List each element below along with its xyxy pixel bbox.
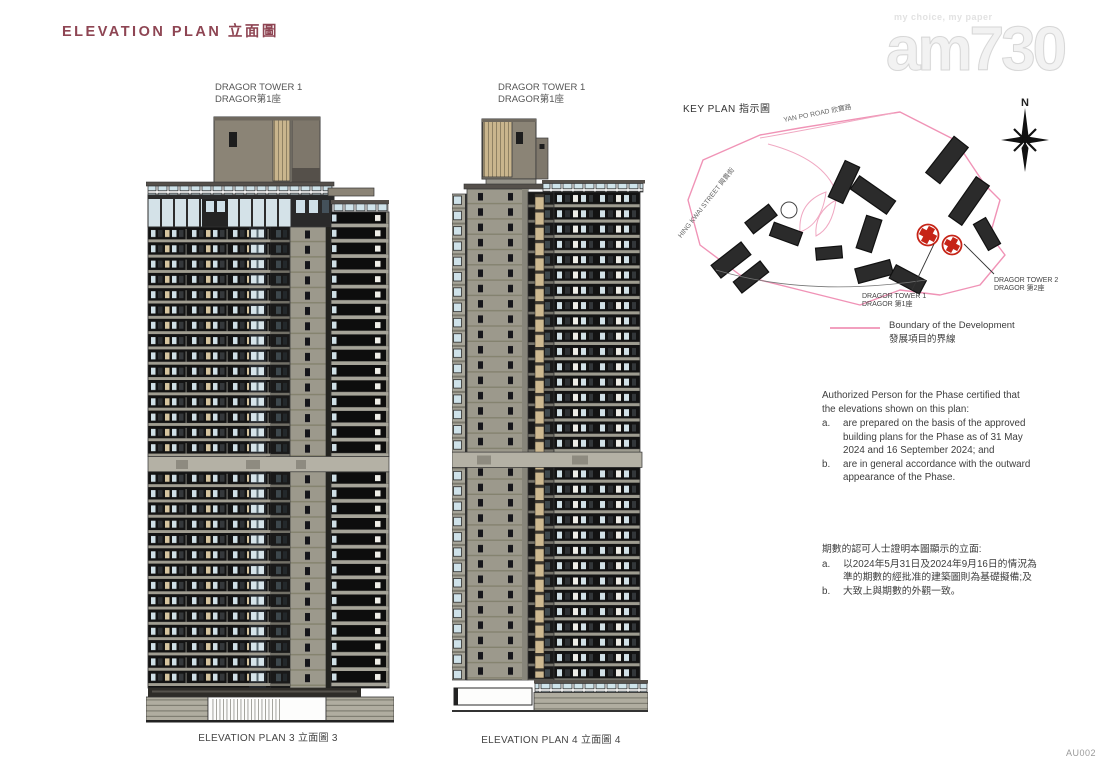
elevation-drawing-tower2 (452, 110, 648, 726)
map-label-tower2-zh: DRAGOR 第2座 (994, 283, 1045, 292)
elevation-drawing-tower1 (146, 112, 394, 724)
caption-elevation-plan-4: ELEVATION PLAN 4 立面圖 4 (446, 731, 656, 746)
road-curve (768, 144, 836, 192)
legend-text-en: Boundary of the Development (889, 319, 1015, 333)
tower1-facade-upper (148, 227, 290, 457)
note-zh-item-a: a. 以2024年5月31日及2024年9月16日的情況為準的期數的經批准的建築… (822, 558, 1046, 585)
map-label-tower1-en: DRAGOR TOWER 1 (862, 293, 926, 300)
tower1-title-en: DRAGOR TOWER 1 (215, 82, 302, 94)
building-footprints (711, 136, 1000, 294)
note-zh-item-a-text: 以2024年5月31日及2024年9月16日的情況為準的期數的經批准的建築圖則為… (843, 558, 1046, 585)
tower2-title-zh: DRAGOR第1座 (498, 94, 585, 106)
tower2-central-bay (528, 192, 554, 680)
tower1-podium (146, 688, 394, 723)
caption-elevation-plan-3: ELEVATION PLAN 3 立面圖 3 (144, 729, 392, 744)
tower2-podium (452, 680, 648, 712)
road-curve (816, 200, 836, 236)
page-title: ELEVATION PLAN 立面圖 (62, 20, 279, 41)
note-zh-item-b: b. 大致上與期數的外觀一致。 (822, 585, 1046, 599)
boundary-line-sample (830, 324, 880, 332)
tower1-title: DRAGOR TOWER 1 DRAGOR第1座 (215, 82, 302, 107)
north-label: N (1021, 97, 1029, 109)
tower1-facade-lower (148, 472, 290, 688)
note-en-item-b-text: are in general accordance with the outwa… (843, 458, 1036, 485)
tower1-title-zh: DRAGOR第1座 (215, 94, 302, 106)
tower1-refuge-floor (148, 457, 389, 472)
note-en-item-a-text: are prepared on the basis of the approve… (843, 417, 1036, 458)
note-en-item-b: b. are in general accordance with the ou… (822, 458, 1036, 485)
note-zh-item-b-text: 大致上與期數的外觀一致。 (843, 585, 1046, 599)
note-zh-item-a-key: a. (822, 558, 843, 585)
am730-logo: am730 (886, 14, 1106, 85)
map-circle-feature (781, 202, 797, 218)
note-en-item-b-key: b. (822, 458, 843, 485)
tower2-refuge-floor (452, 452, 642, 467)
tower1-right-wing (331, 200, 389, 688)
tower1-core-cap (328, 188, 374, 196)
note-en-item-a: a. are prepared on the basis of the appr… (822, 417, 1036, 458)
tower1-roof-structure (214, 117, 320, 185)
legend-text-zh: 發展項目的界線 (889, 333, 1015, 347)
tower2-facade-right (554, 192, 640, 680)
note-zh-intro: 期數的認可人士證明本圖顯示的立面: (822, 543, 1046, 557)
tower1-penthouse (146, 182, 334, 227)
key-plan-map: YAN PO ROAD 欣寶路 HING KWAI STREET 興貴街 DRA… (676, 92, 1106, 357)
map-label-tower2-en: DRAGOR TOWER 2 (994, 277, 1058, 284)
north-arrow: N (1001, 97, 1049, 172)
boundary-legend: Boundary of the Development 發展項目的界線 (830, 319, 1015, 348)
tower2-title-en: DRAGOR TOWER 1 (498, 82, 585, 94)
map-label-tower1-zh: DRAGOR 第1座 (862, 299, 913, 308)
tower2-left-wing (452, 194, 467, 680)
authorized-person-note-en: Authorized Person for the Phase certifie… (822, 389, 1036, 485)
am730-watermark: my choice, my paper am730 (886, 12, 1106, 85)
sheet-code: AU002 (1066, 748, 1096, 758)
note-en-intro: Authorized Person for the Phase certifie… (822, 389, 1036, 416)
note-zh-item-b-key: b. (822, 585, 843, 599)
tower2-roof-structure (482, 119, 548, 187)
road-label-hing-kwai: HING KWAI STREET 興貴街 (676, 165, 736, 239)
authorized-person-note-zh: 期數的認可人士證明本圖顯示的立面: a. 以2024年5月31日及2024年9月… (822, 543, 1046, 598)
road-curve (760, 113, 894, 138)
tower2-title: DRAGOR TOWER 1 DRAGOR第1座 (498, 82, 585, 107)
tower2-core (467, 189, 528, 680)
note-en-item-a-key: a. (822, 417, 843, 458)
subject-tower-markers (917, 224, 963, 256)
